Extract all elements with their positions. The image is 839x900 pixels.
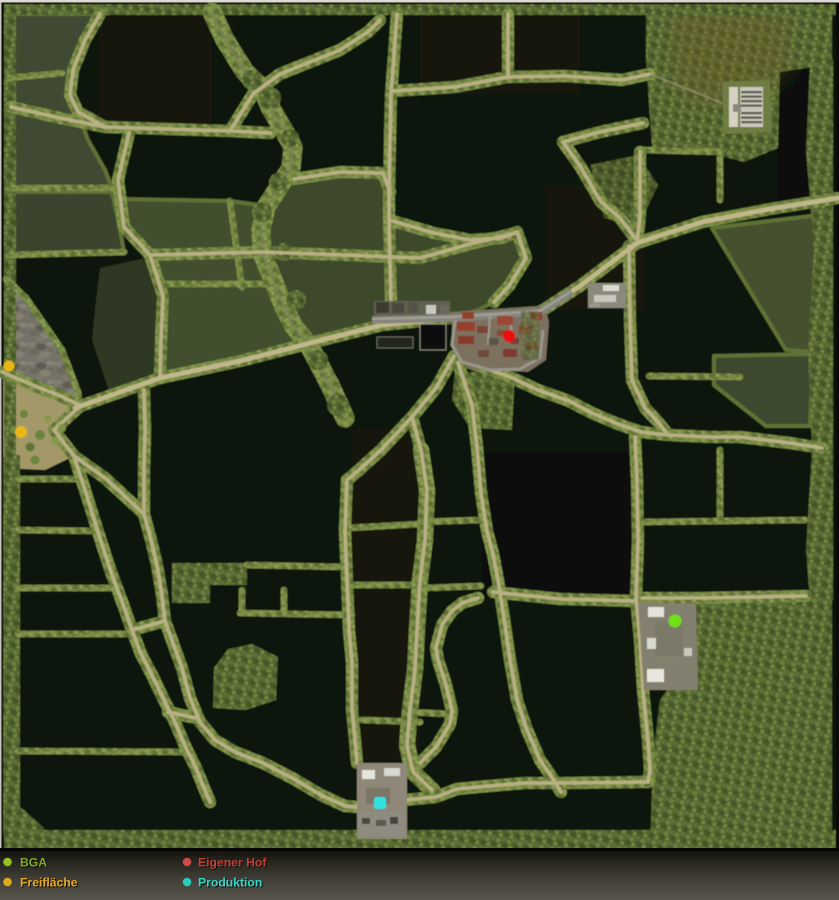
svg-text:Produktion: Produktion (198, 876, 262, 890)
svg-text:Freifläche: Freifläche (20, 876, 78, 890)
svg-text:Eigener Hof: Eigener Hof (198, 856, 267, 870)
svg-text:BGA: BGA (20, 856, 47, 870)
